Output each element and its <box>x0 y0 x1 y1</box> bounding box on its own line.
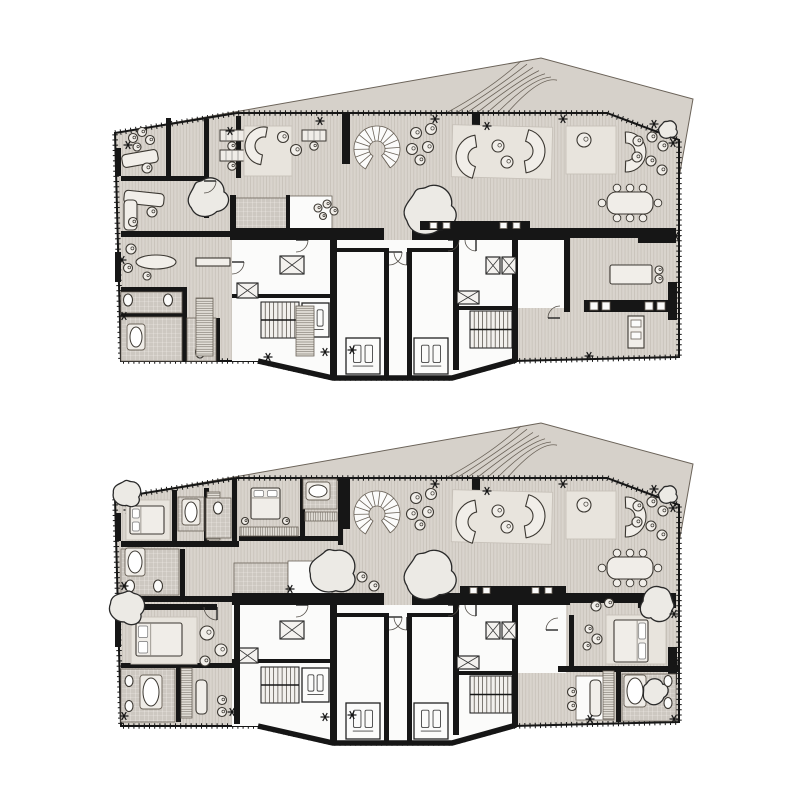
upper-floor-plan-group <box>115 58 693 378</box>
floor-plans-canvas <box>0 0 800 800</box>
floor-plans-page <box>0 0 800 800</box>
lower-floor-plan-group <box>104 423 693 743</box>
